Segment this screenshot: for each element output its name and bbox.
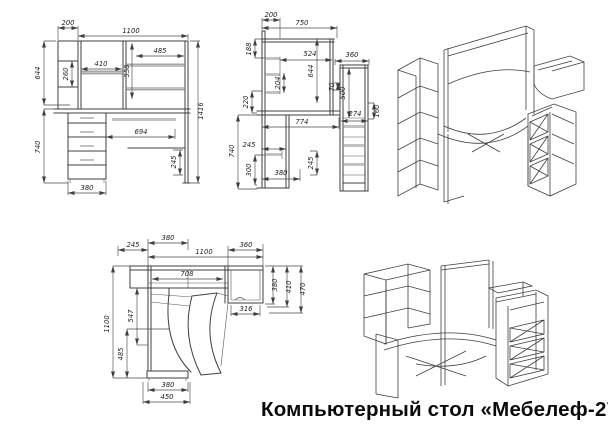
front-view-drawing: 200 1100 485 410 558 644 260 740 694 245 <box>28 3 218 223</box>
top-view-drawing: 380 245 1100 360 708 316 380 410 470 547… <box>85 226 325 426</box>
dimension-label: 316 <box>240 305 254 313</box>
side-view-drawing: 200 750 188 524 360 204 644 70 500 274 1… <box>222 3 397 223</box>
blueprint-canvas: 200 1100 485 410 558 644 260 740 694 245 <box>0 0 608 429</box>
dimension-label: 245 <box>127 241 140 249</box>
dimension-label: 360 <box>346 51 359 59</box>
dimension-label: 750 <box>296 19 309 27</box>
dimension-label: 70 <box>328 83 336 92</box>
dimension-label: 274 <box>349 110 362 118</box>
plan-outline <box>130 266 263 381</box>
dimension-label: 204 <box>274 77 282 90</box>
dimension-label: 740 <box>228 145 236 158</box>
dimension-label: 380 <box>162 381 175 389</box>
dimension-label: 708 <box>181 270 195 278</box>
dimension-label: 160 <box>373 105 381 118</box>
iso-wireframe <box>398 26 584 204</box>
front-drawer-unit <box>68 113 106 183</box>
dimension-label: 485 <box>154 47 167 55</box>
dimension-label: 245 <box>307 157 315 170</box>
dimension-label: 558 <box>123 64 131 78</box>
dimension-label: 410 <box>95 60 108 68</box>
dimension-label: 644 <box>34 67 42 80</box>
iso-view-alt <box>346 236 574 404</box>
dimension-label: 1100 <box>103 315 111 332</box>
dimension-label: 547 <box>127 309 135 323</box>
dimension-label: 524 <box>304 50 317 58</box>
dimension-label: 1100 <box>122 27 139 35</box>
dimension-label: 380 <box>275 169 288 177</box>
product-title: Компьютерный стол «Мебелеф-27» <box>261 398 606 422</box>
dimension-label: 644 <box>307 65 315 78</box>
side-outline <box>257 31 340 188</box>
dimension-label: 188 <box>245 42 253 56</box>
dimension-label: 470 <box>299 283 307 296</box>
dimension-label: 200 <box>265 11 278 19</box>
dimension-label: 694 <box>135 128 148 136</box>
dimension-label: 245 <box>243 141 256 149</box>
front-dimensions: 200 1100 485 410 558 644 260 740 694 245 <box>34 19 205 195</box>
dimension-label: 200 <box>62 19 75 27</box>
side-dimensions: 200 750 188 524 360 204 644 70 500 274 1… <box>228 11 381 189</box>
dimension-label: 1416 <box>197 102 205 120</box>
dimension-label: 380 <box>81 184 94 192</box>
dimension-label: 220 <box>242 96 250 109</box>
dimension-label: 360 <box>240 241 253 249</box>
dimension-label: 500 <box>339 87 347 100</box>
side-drawer-tower <box>340 65 368 191</box>
dimension-label: 300 <box>245 164 253 177</box>
iso-wireframe-alt <box>364 260 548 398</box>
dimension-label: 380 <box>271 279 279 292</box>
plan-dimensions: 380 245 1100 360 708 316 380 410 470 547… <box>103 234 307 404</box>
iso-view-main <box>388 6 603 214</box>
dimension-label: 740 <box>34 141 42 154</box>
dimension-label: 774 <box>296 118 309 126</box>
dimension-label: 410 <box>285 281 293 294</box>
dimension-label: 245 <box>170 156 178 169</box>
dimension-label: 450 <box>161 393 174 401</box>
dimension-label: 260 <box>62 68 70 81</box>
dimension-label: 485 <box>117 348 125 361</box>
dimension-label: 380 <box>162 234 175 242</box>
dimension-label: 1100 <box>195 248 212 256</box>
